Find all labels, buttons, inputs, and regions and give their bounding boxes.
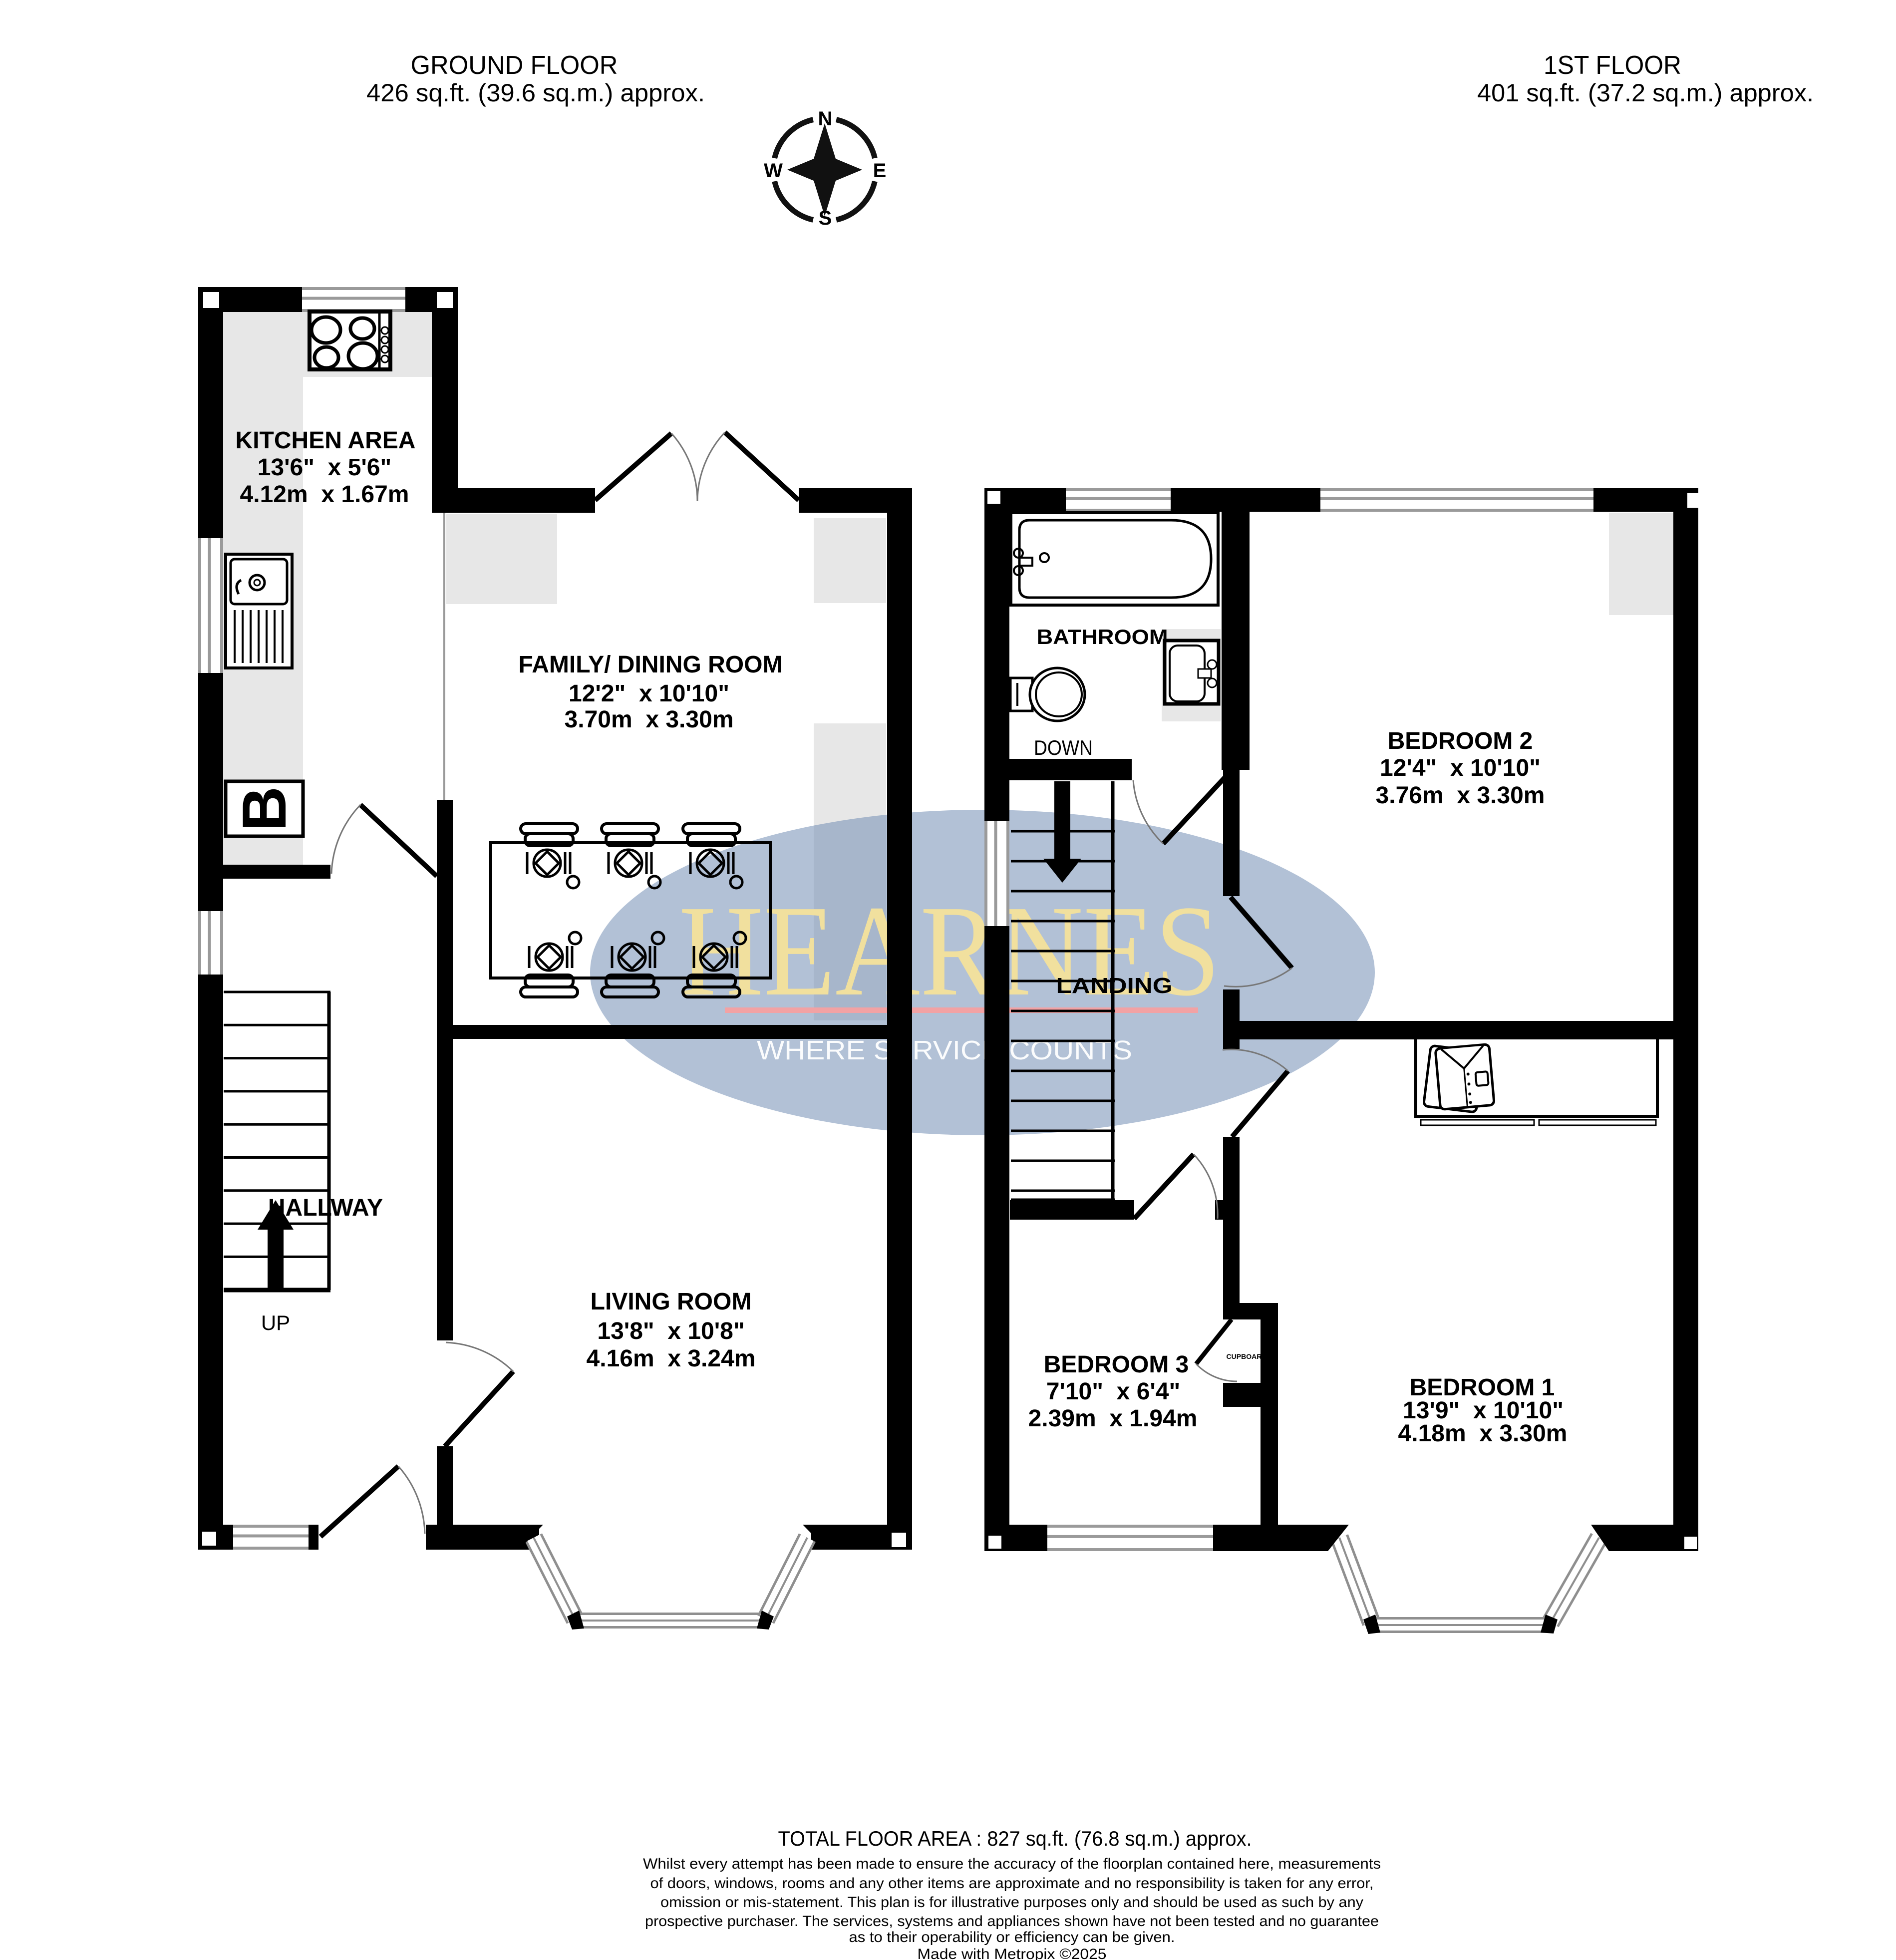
svg-text:12'2" x 10'10": 12'2" x 10'10" (569, 680, 729, 707)
svg-text:CUPBOARD: CUPBOARD (1227, 1352, 1267, 1360)
svg-text:of doors, windows, rooms and a: of doors, windows, rooms and any other i… (650, 1875, 1374, 1892)
svg-text:BEDROOM 2: BEDROOM 2 (1388, 728, 1533, 754)
svg-text:7'10" x 6'4": 7'10" x 6'4" (1046, 1378, 1181, 1405)
svg-text:UP: UP (261, 1311, 290, 1334)
svg-text:S: S (819, 207, 832, 229)
svg-text:3.70m x 3.30m: 3.70m x 3.30m (565, 706, 734, 733)
svg-text:401 sq.ft. (37.2 sq.m.) approx: 401 sq.ft. (37.2 sq.m.) approx. (1477, 79, 1814, 107)
svg-text:12'4" x 10'10": 12'4" x 10'10" (1380, 755, 1541, 781)
svg-text:13'6" x 5'6": 13'6" x 5'6" (258, 454, 392, 481)
svg-text:2.39m x 1.94m: 2.39m x 1.94m (1028, 1405, 1198, 1432)
svg-text:prospective purchaser. The ser: prospective purchaser. The services, sys… (645, 1913, 1379, 1930)
svg-text:BEDROOM 3: BEDROOM 3 (1044, 1351, 1189, 1378)
svg-text:426 sq.ft. (39.6 sq.m.) approx: 426 sq.ft. (39.6 sq.m.) approx. (366, 79, 705, 107)
svg-text:DOWN: DOWN (1034, 736, 1093, 759)
svg-text:4.12m x 1.67m: 4.12m x 1.67m (240, 481, 409, 508)
svg-text:Made with Metropix ©2025: Made with Metropix ©2025 (918, 1946, 1107, 1960)
svg-text:FAMILY/ DINING ROOM: FAMILY/ DINING ROOM (519, 652, 783, 678)
svg-text:4.18m x 3.30m: 4.18m x 3.30m (1398, 1420, 1568, 1447)
svg-text:LANDING: LANDING (1056, 974, 1173, 998)
svg-text:3.76m x 3.30m: 3.76m x 3.30m (1376, 782, 1545, 809)
svg-text:B: B (230, 786, 299, 831)
svg-text:KITCHEN AREA: KITCHEN AREA (236, 427, 416, 454)
svg-text:omission or mis-statement. Thi: omission or mis-statement. This plan is … (660, 1894, 1363, 1911)
svg-text:GROUND FLOOR: GROUND FLOOR (411, 51, 618, 80)
svg-text:as to their operability or eff: as to their operability or efficiency ca… (849, 1929, 1175, 1946)
svg-text:E: E (873, 160, 887, 182)
svg-text:13'8" x 10'8": 13'8" x 10'8" (597, 1318, 744, 1344)
svg-text:TOTAL FLOOR AREA : 827 sq.ft.: TOTAL FLOOR AREA : 827 sq.ft. (76.8 sq.m… (778, 1827, 1252, 1850)
svg-text:1ST FLOOR: 1ST FLOOR (1544, 51, 1681, 80)
svg-text:W: W (764, 160, 783, 182)
svg-text:Whilst every attempt has been: Whilst every attempt has been made to en… (643, 1856, 1381, 1872)
svg-text:4.16m x 3.24m: 4.16m x 3.24m (587, 1345, 756, 1372)
svg-text:N: N (818, 108, 833, 130)
svg-text:BATHROOM: BATHROOM (1037, 625, 1168, 649)
svg-text:HALLWAY: HALLWAY (268, 1195, 383, 1221)
svg-text:LIVING ROOM: LIVING ROOM (591, 1289, 752, 1315)
